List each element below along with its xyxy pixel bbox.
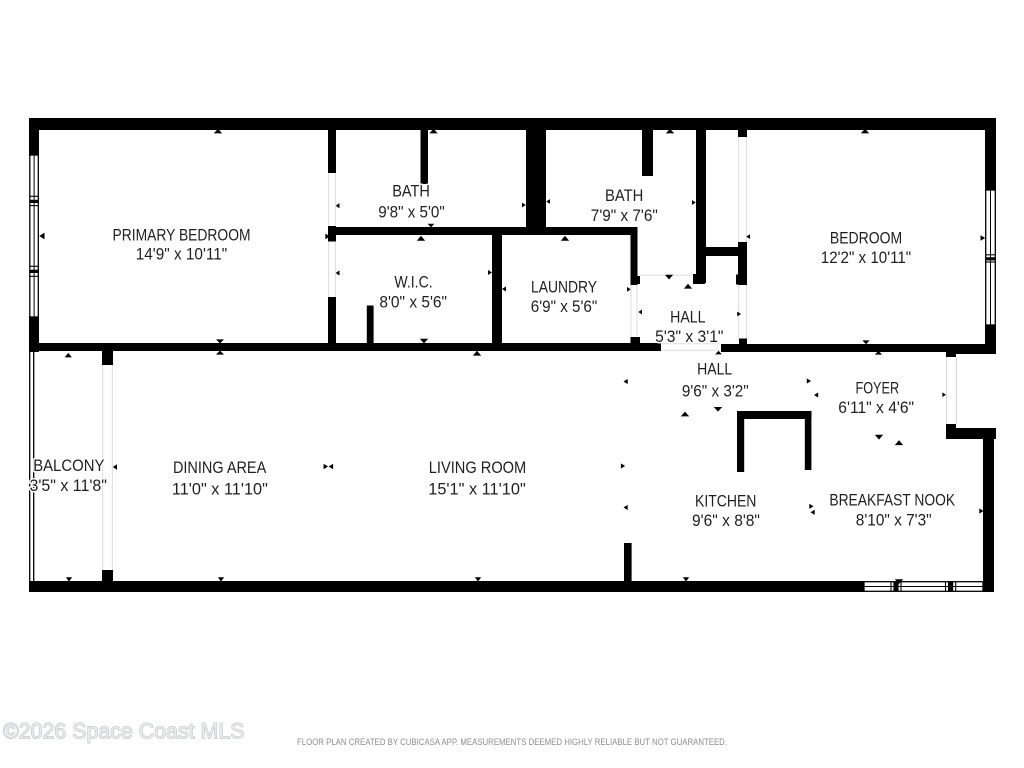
svg-text:6'9" x 5'6": 6'9" x 5'6" xyxy=(531,297,598,316)
svg-text:8'0" x 5'6": 8'0" x 5'6" xyxy=(379,293,447,312)
svg-text:©2026 Space Coast MLS: ©2026 Space Coast MLS xyxy=(3,719,245,744)
svg-text:3'5" x 11'8": 3'5" x 11'8" xyxy=(29,476,107,495)
svg-text:PRIMARY BEDROOM: PRIMARY BEDROOM xyxy=(113,226,251,245)
svg-text:6'11" x 4'6": 6'11" x 4'6" xyxy=(838,398,914,417)
svg-text:BATH: BATH xyxy=(605,186,643,205)
svg-text:BATH: BATH xyxy=(392,182,430,201)
svg-text:LAUNDRY: LAUNDRY xyxy=(531,278,597,297)
svg-text:HALL: HALL xyxy=(670,308,705,327)
svg-text:BEDROOM: BEDROOM xyxy=(830,229,902,248)
svg-text:9'8" x 5'0": 9'8" x 5'0" xyxy=(378,203,445,222)
svg-text:9'6" x 8'8": 9'6" x 8'8" xyxy=(692,511,760,530)
svg-text:BALCONY: BALCONY xyxy=(33,456,104,475)
svg-text:7'9" x 7'6": 7'9" x 7'6" xyxy=(591,206,658,225)
svg-text:LIVING ROOM: LIVING ROOM xyxy=(429,458,527,477)
svg-text:W.I.C.: W.I.C. xyxy=(394,273,432,292)
svg-text:KITCHEN: KITCHEN xyxy=(695,492,756,511)
svg-text:5'3" x 3'1": 5'3" x 3'1" xyxy=(655,327,723,346)
svg-text:12'2" x 10'11": 12'2" x 10'11" xyxy=(821,248,911,267)
svg-text:15'1" x 11'10": 15'1" x 11'10" xyxy=(428,480,526,499)
svg-text:BREAKFAST NOOK: BREAKFAST NOOK xyxy=(829,491,955,510)
svg-text:8'10" x 7'3": 8'10" x 7'3" xyxy=(856,511,932,530)
svg-text:11'0" x 11'10": 11'0" x 11'10" xyxy=(172,480,268,499)
svg-text:14'9" x 10'11": 14'9" x 10'11" xyxy=(136,245,228,264)
svg-text:FLOOR PLAN CREATED BY CUBICASA: FLOOR PLAN CREATED BY CUBICASA APP. MEAS… xyxy=(297,737,727,748)
svg-text:HALL: HALL xyxy=(697,360,732,379)
svg-text:9'6" x 3'2": 9'6" x 3'2" xyxy=(682,382,749,401)
svg-text:DINING AREA: DINING AREA xyxy=(173,458,267,477)
svg-text:FOYER: FOYER xyxy=(855,379,899,398)
